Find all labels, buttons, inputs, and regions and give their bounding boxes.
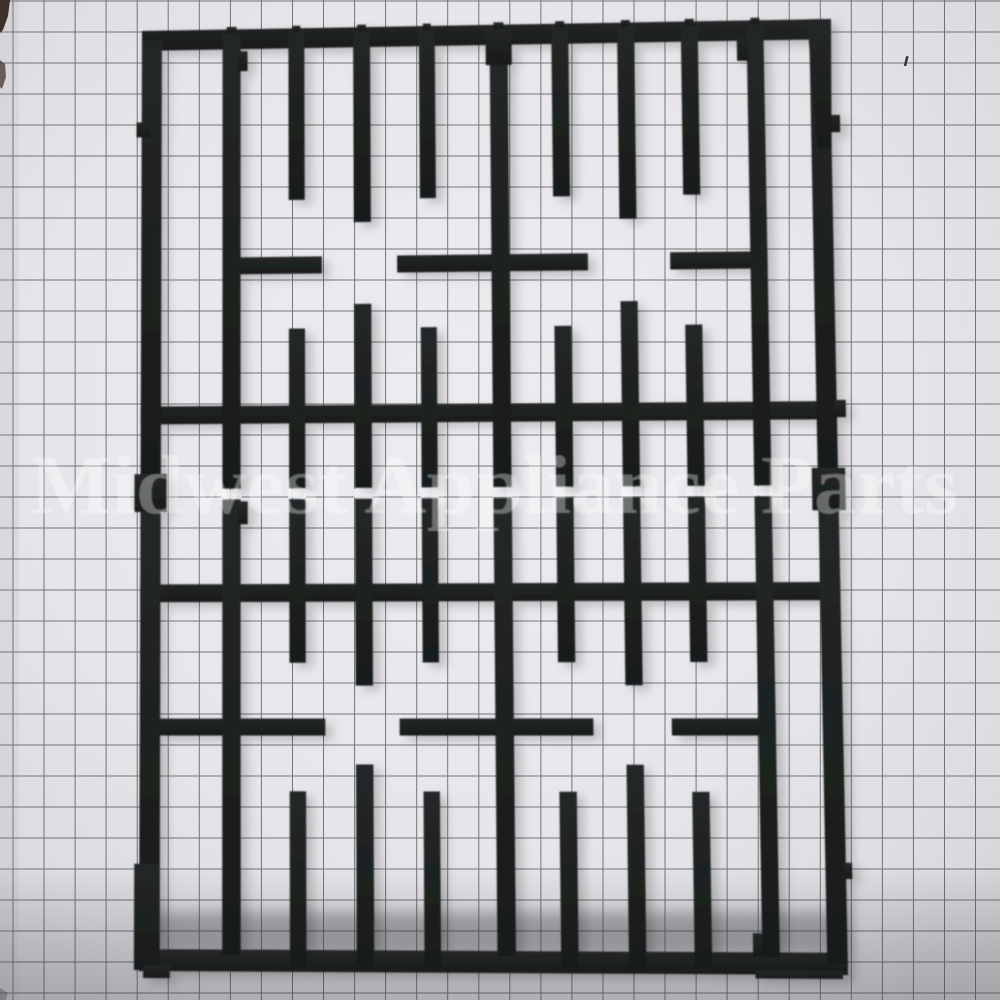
svg-text:Midwest Appliance Parts: Midwest Appliance Parts (30, 439, 958, 532)
